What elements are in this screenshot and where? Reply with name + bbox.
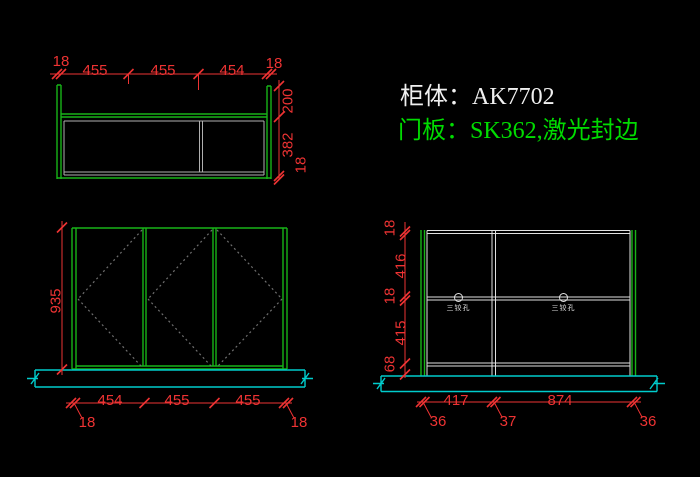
top-view-inner-panel [64, 121, 264, 175]
dim-label: 37 [500, 413, 517, 430]
hole-label: 三铰孔 [552, 303, 576, 312]
door-spec-label: 门板：SK362,激光封边 [398, 117, 639, 144]
top-view-dimension-lines [50, 74, 279, 180]
dim-label: 935 [48, 288, 65, 313]
front-view: 935 454 455 455 18 18 [27, 221, 313, 431]
internal-structure-view: 三铰孔 三铰孔 18 416 18 415 68 417 874 36 37 3… [373, 220, 665, 430]
door-swing-dashes [78, 230, 282, 367]
dim-label: 455 [235, 392, 260, 409]
dim-label: 455 [150, 62, 175, 79]
dim-label: 417 [443, 392, 468, 409]
cad-drawing: 18 455 455 454 18 200 382 18 935 454 455… [0, 0, 700, 477]
dim-label: 18 [382, 220, 399, 237]
dim-label: 18 [382, 288, 399, 305]
dim-label: 454 [97, 392, 122, 409]
dim-label: 455 [164, 392, 189, 409]
internal-view-dimension-ticks [400, 227, 641, 408]
top-section-view: 18 455 455 454 18 200 382 18 [50, 53, 310, 185]
dim-label: 18 [53, 53, 70, 70]
dim-label: 455 [82, 62, 107, 79]
hole-label: 三铰孔 [447, 303, 471, 312]
top-view-cabinet-outline [57, 85, 271, 179]
internal-view-frame [427, 231, 630, 377]
dim-label: 18 [293, 157, 310, 174]
dim-label: 18 [79, 414, 96, 431]
front-view-dimension-ticks [57, 223, 293, 409]
internal-view-side-panels [421, 230, 636, 376]
internal-view-baseline [373, 376, 665, 392]
front-view-dimension-lines [62, 221, 294, 418]
dim-label: 874 [547, 392, 572, 409]
dim-label: 68 [382, 356, 399, 373]
dim-label: 36 [640, 413, 657, 430]
cabinet-model-label: 柜体：AK7702 [400, 83, 555, 110]
front-view-baseline [27, 370, 313, 387]
dim-label: 454 [219, 62, 244, 79]
internal-view-dimension-lines [405, 222, 642, 417]
top-view-dimension-ticks [52, 69, 284, 185]
cad-drawing-canvas: 18 455 455 454 18 200 382 18 935 454 455… [0, 0, 700, 477]
front-view-outline [72, 228, 287, 369]
dim-label: 382 [280, 132, 297, 157]
dim-label: 200 [280, 88, 297, 113]
dim-label: 18 [266, 55, 283, 72]
dim-label: 36 [430, 413, 447, 430]
dim-label: 416 [393, 253, 410, 278]
dim-label: 18 [291, 414, 308, 431]
dim-label: 415 [393, 320, 410, 345]
title-block: 柜体：AK7702 门板：SK362,激光封边 [398, 83, 639, 144]
